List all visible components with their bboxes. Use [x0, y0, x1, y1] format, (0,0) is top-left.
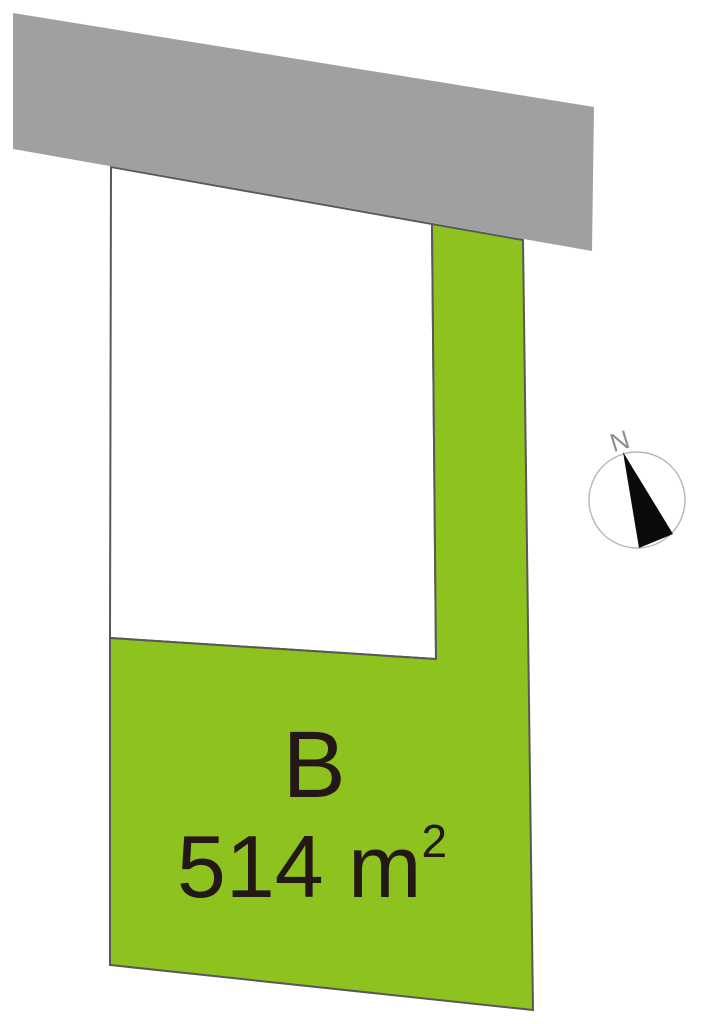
lot-b-area-value: 514 m — [177, 817, 422, 916]
plot-map-svg: N B 514 m2 — [0, 0, 703, 1024]
adjacent-lot-shape — [110, 167, 436, 659]
lot-b-area-exponent: 2 — [421, 815, 447, 867]
plot-diagram: N B 514 m2 — [0, 0, 703, 1024]
lot-b-label: B — [282, 712, 345, 818]
lot-b-area: 514 m2 — [177, 815, 447, 916]
compass: N — [589, 424, 685, 548]
north-label: N — [606, 424, 633, 458]
